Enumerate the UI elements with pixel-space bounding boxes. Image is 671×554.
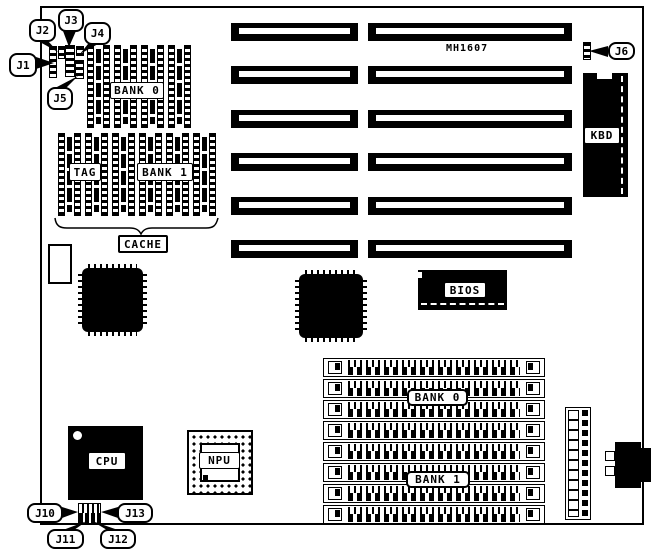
isa-slot bbox=[231, 153, 358, 171]
dip-bank0-label: BANK 0 bbox=[110, 82, 164, 99]
isa-slot bbox=[231, 23, 358, 41]
callout-j11: J11 bbox=[47, 529, 84, 549]
motherboard-diagram: MH1607 BANK 0 TAG BANK 1 CACHE J1 J2 J3 … bbox=[0, 0, 671, 554]
callout-j4: J4 bbox=[84, 22, 111, 45]
cache-label: CACHE bbox=[118, 235, 168, 253]
isa-slot bbox=[231, 240, 358, 258]
jumper-block-j4 bbox=[76, 46, 84, 56]
jumper-block-j2 bbox=[58, 46, 65, 59]
simm-bank1-label: BANK 1 bbox=[406, 471, 470, 488]
dip-chip bbox=[112, 133, 135, 216]
dip-chip bbox=[193, 133, 216, 216]
dip-chip bbox=[87, 45, 110, 128]
bios-dashed-line bbox=[421, 303, 504, 305]
kbd-label: KBD bbox=[584, 127, 620, 144]
callout-j5: J5 bbox=[47, 87, 73, 110]
bios-notch bbox=[418, 272, 422, 278]
jumper-block-j6 bbox=[583, 42, 591, 60]
jumper-block-j1 bbox=[49, 46, 57, 78]
kbd-notch bbox=[597, 73, 612, 79]
isa-slot bbox=[368, 240, 572, 258]
kbd-dashed-line bbox=[621, 76, 623, 194]
isa-slot bbox=[368, 23, 572, 41]
callout-j6: J6 bbox=[608, 42, 635, 60]
dip-bank1-label: BANK 1 bbox=[137, 163, 193, 181]
qfp-chip bbox=[78, 264, 147, 336]
connector-pin-tab bbox=[605, 451, 615, 461]
simm-slot bbox=[323, 505, 545, 524]
edge-connector bbox=[615, 442, 641, 488]
qfp-chip bbox=[295, 270, 367, 342]
callout-j10: J10 bbox=[27, 503, 63, 523]
tag-label: TAG bbox=[69, 163, 101, 181]
cpu-label: CPU bbox=[88, 452, 126, 470]
edge-connector-tab bbox=[641, 448, 651, 482]
callout-j12: J12 bbox=[100, 529, 136, 549]
callout-j2: J2 bbox=[29, 19, 56, 42]
npu-label: NPU bbox=[199, 452, 240, 469]
board-model-text: MH1607 bbox=[446, 43, 488, 54]
empty-socket bbox=[48, 244, 72, 284]
npu-orientation-mark bbox=[203, 475, 208, 480]
simm-slot bbox=[323, 442, 545, 461]
isa-slot bbox=[231, 197, 358, 215]
jumper-block-j5 bbox=[75, 60, 84, 79]
simm-bank0-label: BANK 0 bbox=[407, 389, 468, 406]
isa-slot bbox=[368, 153, 572, 171]
simm-slot bbox=[323, 421, 545, 440]
connector-pin-tab bbox=[605, 466, 615, 476]
dip-chip bbox=[168, 45, 191, 128]
simm-slot bbox=[323, 358, 545, 377]
jumper-block-j3 bbox=[65, 45, 75, 77]
isa-slot bbox=[231, 110, 358, 128]
bios-label: BIOS bbox=[444, 282, 486, 298]
isa-slot bbox=[368, 110, 572, 128]
callout-j13: J13 bbox=[117, 503, 153, 523]
resistor-network bbox=[565, 407, 591, 520]
cpu-pin1-dot bbox=[73, 431, 82, 440]
isa-slot bbox=[368, 197, 572, 215]
isa-slot bbox=[231, 66, 358, 84]
callout-j3: J3 bbox=[58, 9, 84, 32]
callout-j1: J1 bbox=[9, 53, 37, 77]
jumper-block-j10 bbox=[78, 503, 101, 524]
isa-slot bbox=[368, 66, 572, 84]
